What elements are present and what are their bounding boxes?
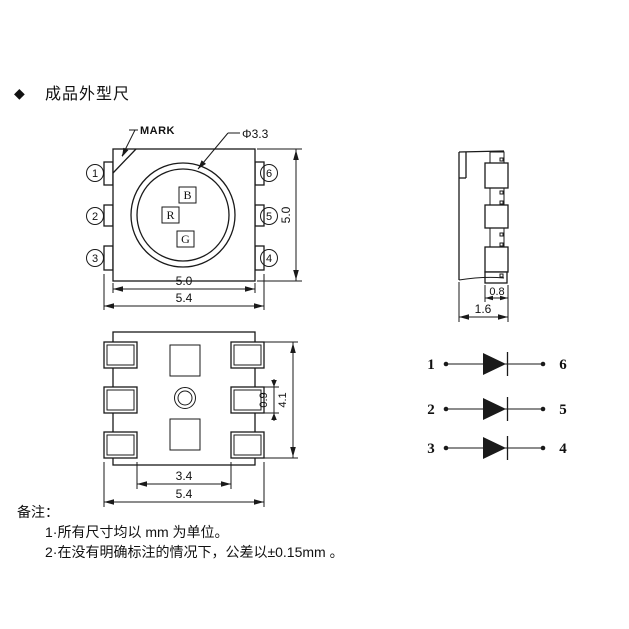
note-item-2: 2·在没有明确标注的情况下，公差以±0.15mm 。 <box>45 544 344 560</box>
datasheet-page: ◆ 成品外型尺 B R G 1 2 <box>0 0 629 629</box>
diode-row-2: 2 5 <box>427 397 567 421</box>
page-title: 成品外型尺 <box>45 85 130 103</box>
pin-4-label: 4 <box>266 253 272 265</box>
pin-1-label: 1 <box>92 168 98 180</box>
die-label-b: B <box>183 188 191 202</box>
side-lead-2 <box>485 205 508 228</box>
pin-3-label: 3 <box>92 253 98 265</box>
pin-5-label: 5 <box>266 211 272 223</box>
dim-body-height-value: 5.0 <box>279 206 293 223</box>
dim-bottom-total-width-value: 5.4 <box>176 487 193 501</box>
diamond-bullet-icon: ◆ <box>14 85 25 101</box>
side-lead-3 <box>485 247 508 272</box>
mark-label: MARK <box>140 125 175 137</box>
notes-heading: 备注： <box>17 504 59 520</box>
dim-pad-height: 0.9 <box>258 379 279 421</box>
diode-row-3: 3 4 <box>427 436 567 460</box>
circuit-pin-5: 5 <box>559 402 567 418</box>
diode-symbol <box>483 398 506 420</box>
dim-thickness-value: 1.6 <box>475 302 492 316</box>
lens-diameter-label: Φ3.3 <box>242 127 269 141</box>
dim-total-width-value: 5.4 <box>176 291 193 305</box>
circuit-pin-6: 6 <box>559 357 567 373</box>
dim-pad-span: 3.4 <box>137 462 231 489</box>
circuit-diagram: 1 6 2 5 3 4 <box>427 352 567 460</box>
die-label-g: G <box>181 232 190 246</box>
note-item-1: 1·所有尺寸均以 mm 为单位。 <box>45 524 229 540</box>
dim-lead-width-value: 0.8 <box>489 286 504 298</box>
dim-pad-span-value: 3.4 <box>176 469 193 483</box>
outline-drawing: ◆ 成品外型尺 B R G 1 2 <box>0 0 629 629</box>
die-label-r: R <box>166 208 174 222</box>
side-lead-1 <box>485 163 508 188</box>
diode-symbol <box>483 353 506 375</box>
bottom-view: 0.9 4.1 3.4 5.4 <box>104 332 298 507</box>
notes-section: 备注： 1·所有尺寸均以 mm 为单位。 2·在没有明确标注的情况下，公差以±0… <box>17 504 344 560</box>
dim-pad-height-value: 0.9 <box>258 392 270 407</box>
top-view: B R G 1 2 3 6 5 4 MARK Φ3.3 <box>87 125 303 310</box>
circuit-pin-3: 3 <box>427 441 435 457</box>
circuit-pin-4: 4 <box>559 441 567 457</box>
dim-pad-column-height-value: 4.1 <box>277 392 289 407</box>
circuit-pin-2: 2 <box>427 402 435 418</box>
circuit-pin-1: 1 <box>427 357 435 373</box>
diode-symbol <box>483 437 506 459</box>
pin-2-label: 2 <box>92 211 98 223</box>
side-view: 0.8 1.6 <box>459 151 508 322</box>
diode-row-1: 1 6 <box>427 352 567 376</box>
pin-6-label: 6 <box>266 168 272 180</box>
title-section: ◆ 成品外型尺 <box>14 85 130 103</box>
dim-body-width-value: 5.0 <box>176 274 193 288</box>
